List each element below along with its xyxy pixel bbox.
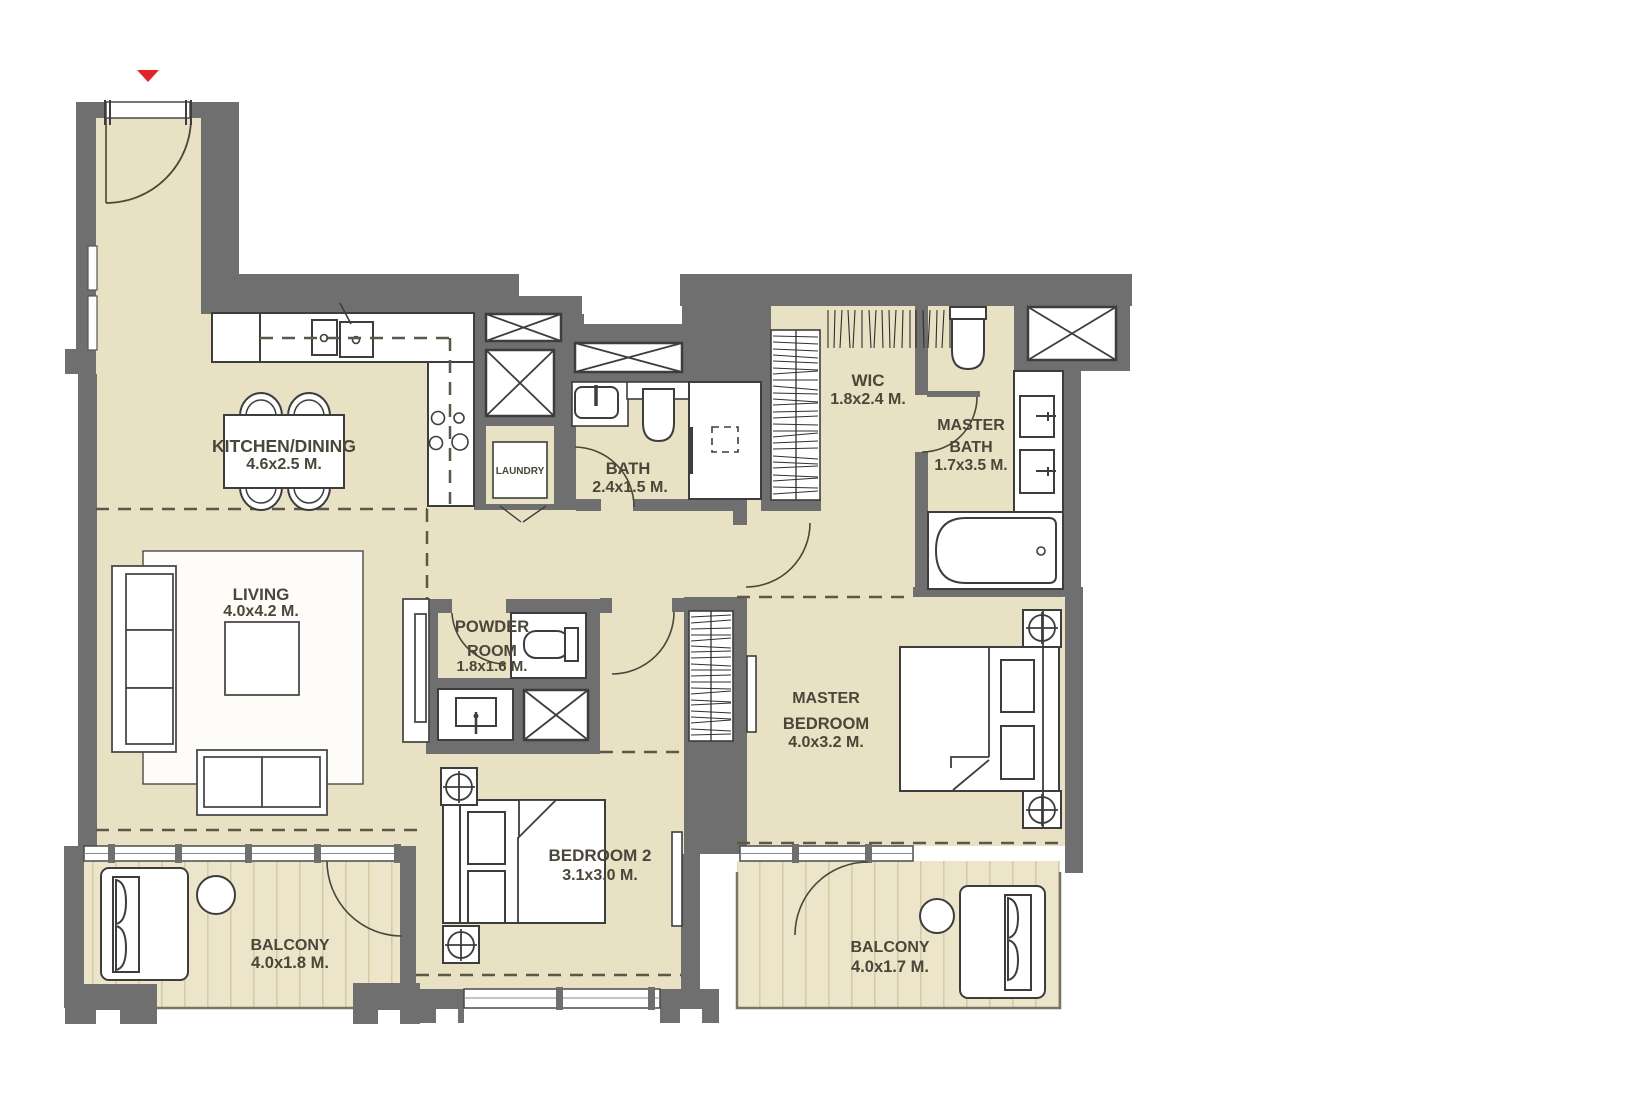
- svg-text:KITCHEN/DINING: KITCHEN/DINING: [212, 436, 356, 456]
- svg-text:WIC: WIC: [851, 371, 884, 390]
- svg-text:4.0x4.2 M.: 4.0x4.2 M.: [223, 603, 299, 620]
- svg-text:BATH: BATH: [606, 460, 651, 478]
- svg-text:LIVING: LIVING: [233, 585, 290, 604]
- svg-text:1.7x3.5 M.: 1.7x3.5 M.: [934, 457, 1007, 474]
- svg-text:1.8x1.6 M.: 1.8x1.6 M.: [457, 658, 528, 675]
- svg-text:2.4x1.5 M.: 2.4x1.5 M.: [592, 479, 668, 496]
- svg-text:MASTER: MASTER: [792, 690, 860, 707]
- svg-text:1.8x2.4 M.: 1.8x2.4 M.: [830, 391, 906, 408]
- svg-text:4.6x2.5 M.: 4.6x2.5 M.: [246, 456, 322, 473]
- svg-text:4.0x1.7 M.: 4.0x1.7 M.: [851, 958, 929, 976]
- svg-text:4.0x3.2 M.: 4.0x3.2 M.: [788, 734, 864, 751]
- svg-text:BALCONY: BALCONY: [250, 937, 329, 954]
- svg-text:BEDROOM 2: BEDROOM 2: [549, 846, 652, 865]
- svg-text:4.0x1.8 M.: 4.0x1.8 M.: [251, 954, 329, 972]
- svg-text:3.1x3.0 M.: 3.1x3.0 M.: [562, 867, 638, 884]
- svg-text:BATH: BATH: [949, 439, 992, 456]
- svg-text:POWDER: POWDER: [455, 618, 529, 636]
- svg-text:LAUNDRY: LAUNDRY: [496, 466, 545, 477]
- svg-text:BEDROOM: BEDROOM: [783, 715, 869, 733]
- svg-text:BALCONY: BALCONY: [850, 939, 929, 956]
- svg-text:MASTER: MASTER: [937, 417, 1005, 434]
